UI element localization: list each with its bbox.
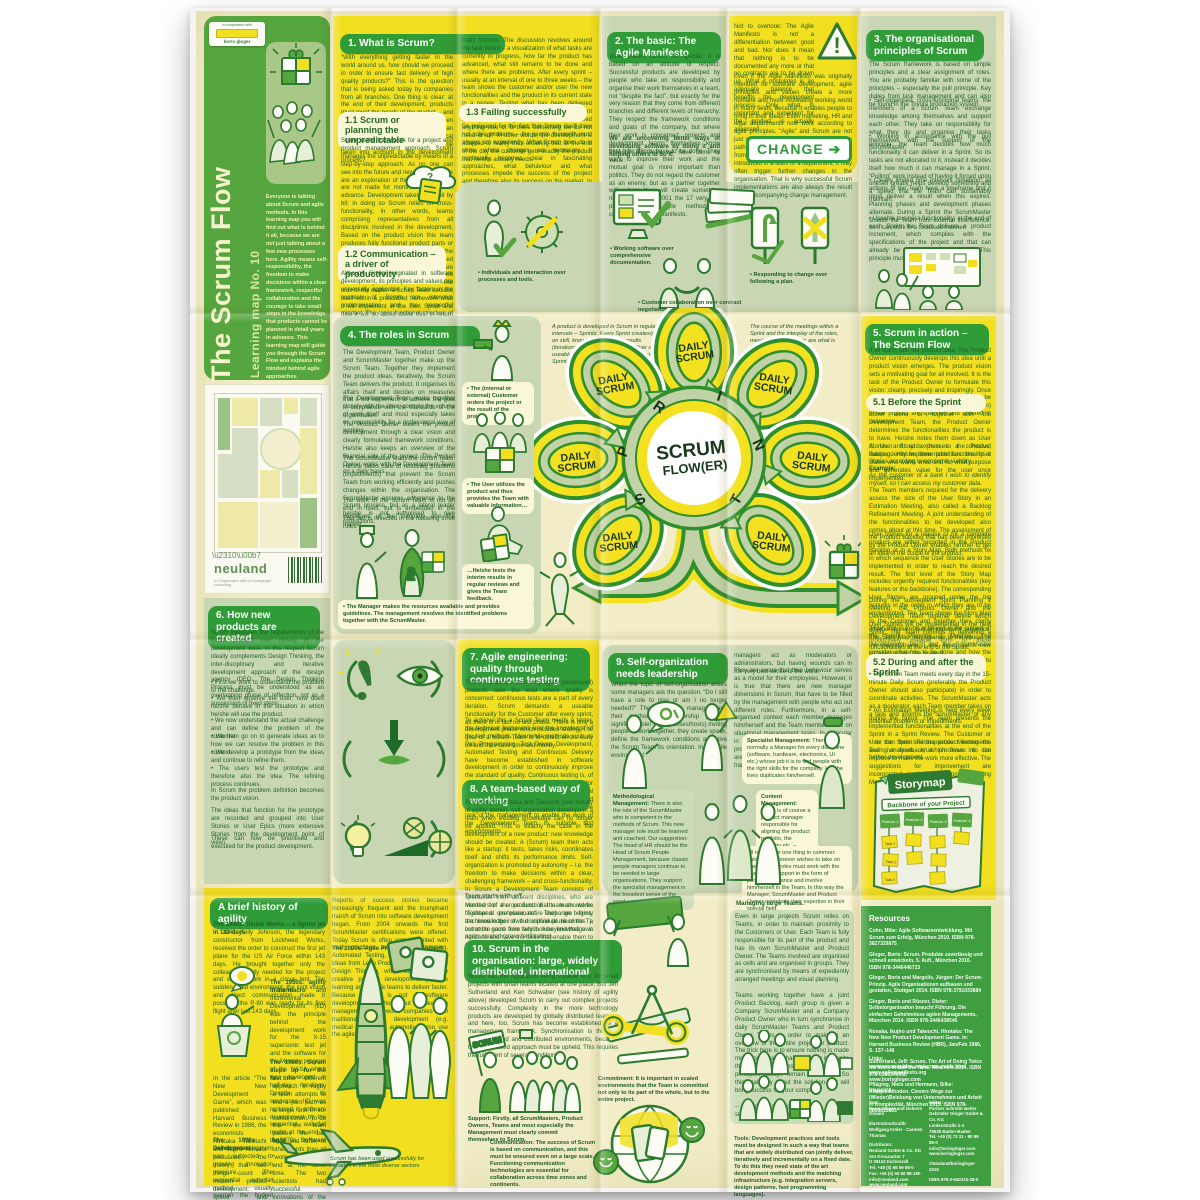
resource-item: Cohn, Mike: Agile Softwareentwicklung. M… bbox=[869, 928, 983, 948]
define-arrow-icon bbox=[378, 720, 410, 765]
resources-heading: Resources bbox=[869, 914, 910, 923]
team-celebrating-illustration bbox=[268, 102, 320, 164]
resource-item: Gloger, Boris und Margolis, Jürgen: Der … bbox=[869, 975, 983, 995]
exclamation-icon bbox=[338, 648, 380, 700]
svg-text:DAILYSCRUM: DAILYSCRUM bbox=[791, 449, 832, 475]
section-3-heading: 3. The organisational principles of Scru… bbox=[866, 30, 984, 61]
section-8-p2: Team starts with a T. bbox=[465, 894, 593, 902]
pointing-manager-illustration bbox=[804, 718, 844, 808]
resources-panel: Resources Cohn, Mike: Agile Softwareentw… bbox=[861, 906, 991, 1186]
section-6-bullet-1: • First we work to understand the proble… bbox=[211, 680, 324, 696]
section-5-1-heading: 5.1 Before the Sprint bbox=[866, 394, 986, 412]
section-9-heading: 9. Self-organization needs leadership bbox=[608, 653, 728, 684]
individuals-over-processes-illustration bbox=[476, 194, 572, 264]
section-4-heading: 4. The roles in Scrum bbox=[340, 326, 480, 346]
scrum-flower-diagram: SCRUM FLOW(ER) S P R I N T DAILYSCRUM DA… bbox=[534, 308, 864, 648]
resource-item: Gloger, Boris: Scrum. Produkte zuverläss… bbox=[869, 952, 983, 972]
svg-text:Task 3: Task 3 bbox=[885, 878, 896, 882]
gift-and-team-illustration bbox=[266, 42, 326, 184]
tools-illustration bbox=[598, 982, 706, 1074]
change-label: CHANGE bbox=[757, 141, 824, 157]
section-6-bullet-5: • We develop a prototype from the ideas … bbox=[211, 750, 324, 766]
brick-icon bbox=[216, 29, 258, 38]
badge-brand-label: bor!s gloger bbox=[212, 39, 262, 44]
svg-text:SM: SM bbox=[406, 567, 416, 581]
team-groups-illustration bbox=[734, 1030, 854, 1122]
three-developers-illustration bbox=[382, 992, 452, 1102]
scrum-flow-poster: In cooperation with bor!s gloger Learnin… bbox=[190, 8, 1010, 1192]
cloud-sketch-illustration: ? bbox=[400, 158, 460, 206]
section-1-3-heading: 1.3 Failing successfully bbox=[459, 104, 587, 122]
brand-row: neuland\u2310\u00b7 In Cooperation with … bbox=[214, 557, 322, 589]
section-5-1-p4: As the customer of a bank I wish to iden… bbox=[869, 473, 991, 489]
svg-text:!: ! bbox=[833, 33, 840, 58]
change-arrow-icon: ➔ bbox=[829, 141, 842, 157]
jet-plane-illustration bbox=[278, 1116, 410, 1186]
gift-icon bbox=[270, 43, 322, 84]
gift-result-icon bbox=[825, 535, 863, 578]
svg-text:DAILYSCRUM: DAILYSCRUM bbox=[751, 529, 792, 555]
user-team-gift-illustration bbox=[466, 412, 536, 476]
photo-stage: In cooperation with bor!s gloger Learnin… bbox=[0, 0, 1200, 1200]
svg-text:Task 2: Task 2 bbox=[886, 860, 897, 865]
working-software-illustration bbox=[610, 186, 674, 242]
manifesto-value-4-caption: • Responding to change over following a … bbox=[750, 272, 834, 286]
resource-item: Nonaka, Ikujiro und Takeuchi, Hirotaka: … bbox=[869, 1029, 983, 1055]
manifesto-value-1-caption: • Individuals and interaction over proce… bbox=[478, 270, 568, 284]
imprint-heading: Imprint bbox=[869, 1087, 983, 1094]
team-trio-illustration bbox=[700, 796, 780, 884]
svg-text:Task 1: Task 1 bbox=[885, 842, 896, 847]
eye-icon bbox=[398, 667, 442, 685]
managing-large-teams-title: Managing large Teams. bbox=[736, 900, 852, 908]
prototype-wedge-icon bbox=[384, 818, 451, 856]
floppy-disks-illustration bbox=[386, 932, 450, 988]
neuland-logo-mark: \u2310\u00b7 bbox=[212, 551, 261, 560]
design-thinking-illustration bbox=[336, 646, 452, 878]
responding-to-change-illustration bbox=[746, 204, 838, 270]
svg-text:Feature 4: Feature 4 bbox=[953, 818, 971, 823]
product-owner-illustration bbox=[466, 320, 536, 382]
history-era-4: Software development was subjected to gr… bbox=[213, 1146, 273, 1200]
resource-item: Gloger, Boris und Rösner, Dieter: Selbst… bbox=[869, 999, 983, 1025]
communication-caption: Communication: The success of Scrum is b… bbox=[490, 1140, 600, 1189]
speaking-manager-illustration bbox=[623, 702, 684, 788]
links-label: Links: bbox=[869, 1056, 983, 1063]
svg-text:Feature 2: Feature 2 bbox=[905, 817, 923, 822]
link: www.borisgloger.com bbox=[869, 1077, 983, 1084]
storymap-illustration: Storymap Backbone of your Project Featur… bbox=[866, 768, 992, 896]
gift-panel bbox=[266, 42, 326, 184]
leadership-illustrations bbox=[608, 698, 854, 888]
section-6-outro-1: In Scrum the problem definition becomes … bbox=[211, 788, 324, 804]
cooperation-badge: In cooperation with bor!s gloger bbox=[209, 22, 265, 46]
back-cover: neuland\u2310\u00b7 In Cooperation with … bbox=[204, 384, 330, 594]
global-communication-illustration bbox=[590, 1100, 710, 1186]
tools-caption: Tools: Development practices and tools m… bbox=[734, 1136, 854, 1199]
section-6-bullet-2: • We then observe the user: how does he/… bbox=[211, 696, 324, 720]
change-sign: CHANGE ➔ bbox=[746, 136, 852, 163]
team-at-board-illustration bbox=[870, 246, 992, 310]
poster-title-block: Learning map No. 10 The Scrum Flow bbox=[206, 52, 264, 382]
sidebar-intro: Everyone is talking about Scrum and agil… bbox=[266, 194, 328, 370]
scrum-sign-crowd-illustration: SCRUM bbox=[468, 1028, 584, 1114]
svg-text:?: ? bbox=[427, 172, 433, 183]
sidebar: In cooperation with bor!s gloger Learnin… bbox=[204, 16, 330, 380]
manager-and-scrummaster-illustration: SM bbox=[342, 522, 458, 602]
warning-triangle-icon: ! bbox=[816, 20, 858, 66]
barcode bbox=[288, 557, 322, 583]
svg-text:Feature 3: Feature 3 bbox=[929, 819, 947, 824]
poster-thumbnail bbox=[214, 393, 322, 553]
section-6-bullet-6: • The users test the prototype and there… bbox=[211, 766, 324, 790]
manager-caption: • The Manager makes the resources availa… bbox=[338, 600, 534, 629]
idea-lightbulb-icon bbox=[341, 815, 375, 856]
review-unboxing-illustration bbox=[468, 506, 534, 562]
poster-kicker: Learning map No. 10 bbox=[248, 58, 262, 378]
section-2-p3: Through this work we have come to value: bbox=[609, 150, 720, 166]
neuland-logo: neuland bbox=[214, 561, 267, 576]
badge-top-label: In cooperation with bbox=[212, 24, 262, 28]
history-caption: Scrum has been used successfully for dec… bbox=[330, 1156, 430, 1170]
poster-title: The Scrum Flow bbox=[206, 52, 237, 382]
section-6-outro-3: These can now be prioritised and execute… bbox=[211, 836, 324, 852]
celebrating-manager-illustration bbox=[702, 702, 736, 770]
cooperation-line: In Cooperation with ›|‹ borisgloger cons… bbox=[214, 579, 284, 587]
podium-speaker-illustration bbox=[212, 966, 268, 1058]
svg-text:Feature 1: Feature 1 bbox=[881, 819, 899, 824]
